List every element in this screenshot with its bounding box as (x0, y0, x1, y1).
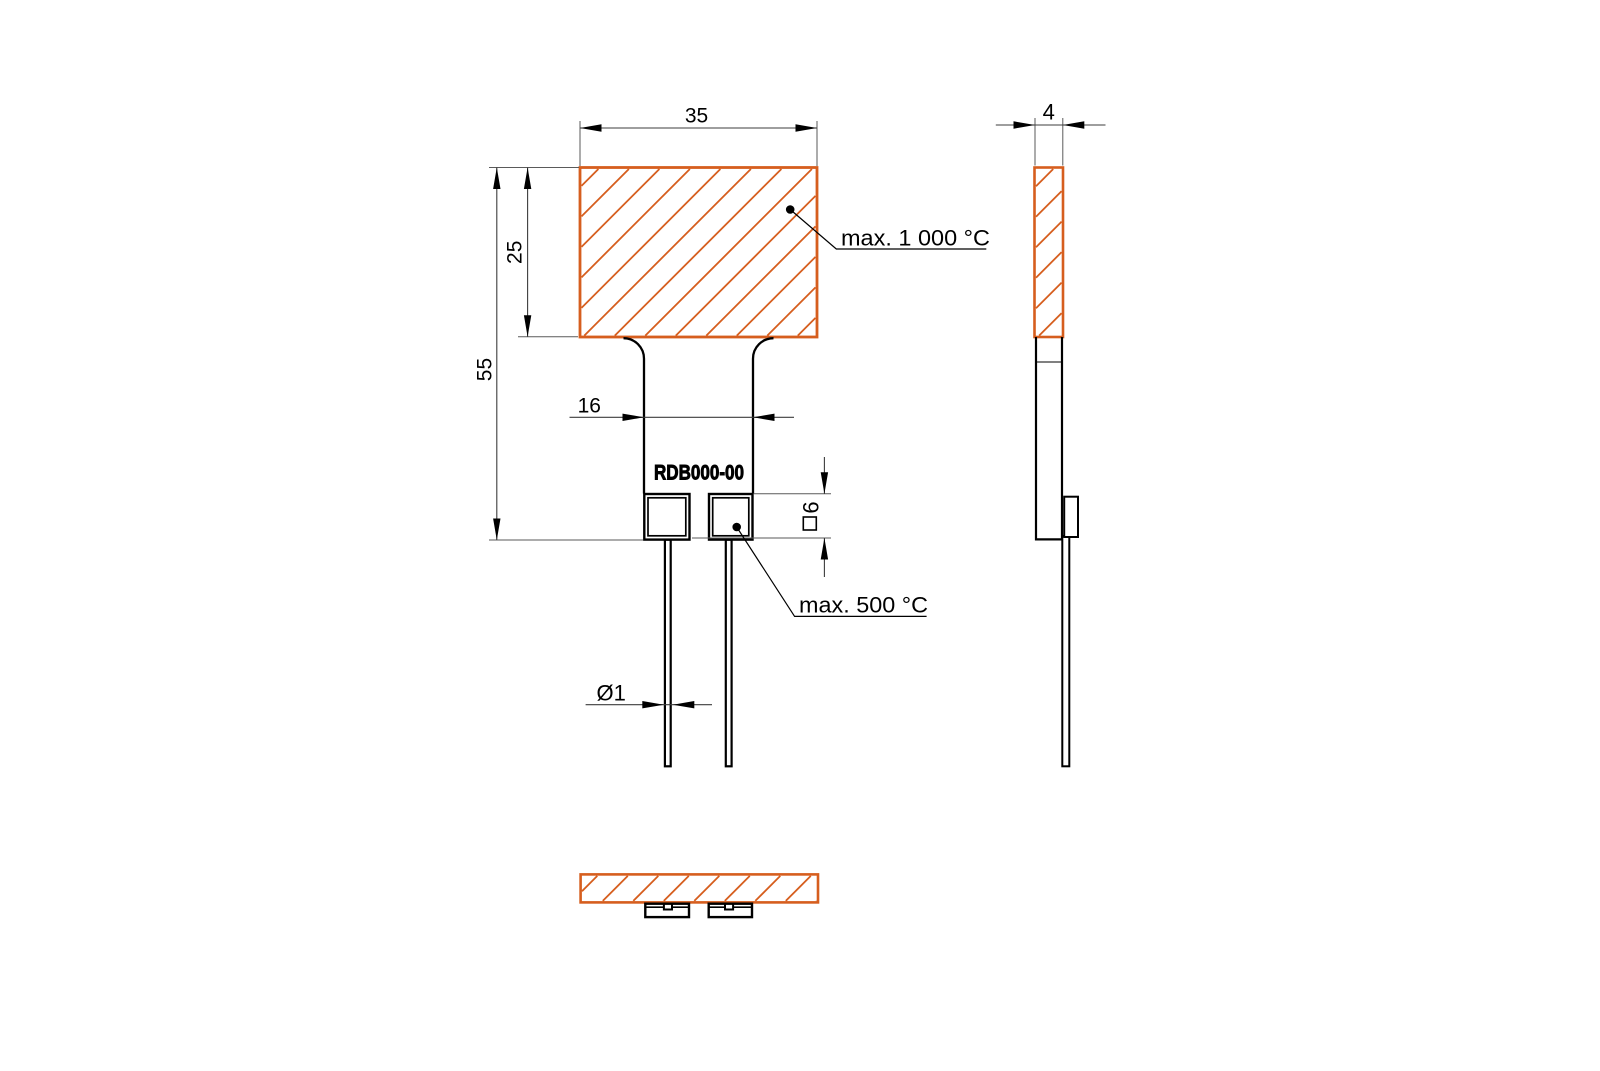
svg-text:25: 25 (504, 241, 527, 264)
svg-text:RDB000-00: RDB000-00 (654, 462, 744, 485)
svg-text:35: 35 (685, 104, 708, 127)
svg-text:16: 16 (578, 395, 601, 418)
svg-text:55: 55 (473, 358, 496, 381)
svg-text:max. 1 000 °C: max. 1 000 °C (841, 225, 990, 250)
svg-text:6: 6 (798, 501, 823, 513)
svg-text:Ø1: Ø1 (597, 680, 626, 705)
svg-text:4: 4 (1043, 100, 1055, 125)
svg-text:max. 500 °C: max. 500 °C (799, 593, 928, 618)
